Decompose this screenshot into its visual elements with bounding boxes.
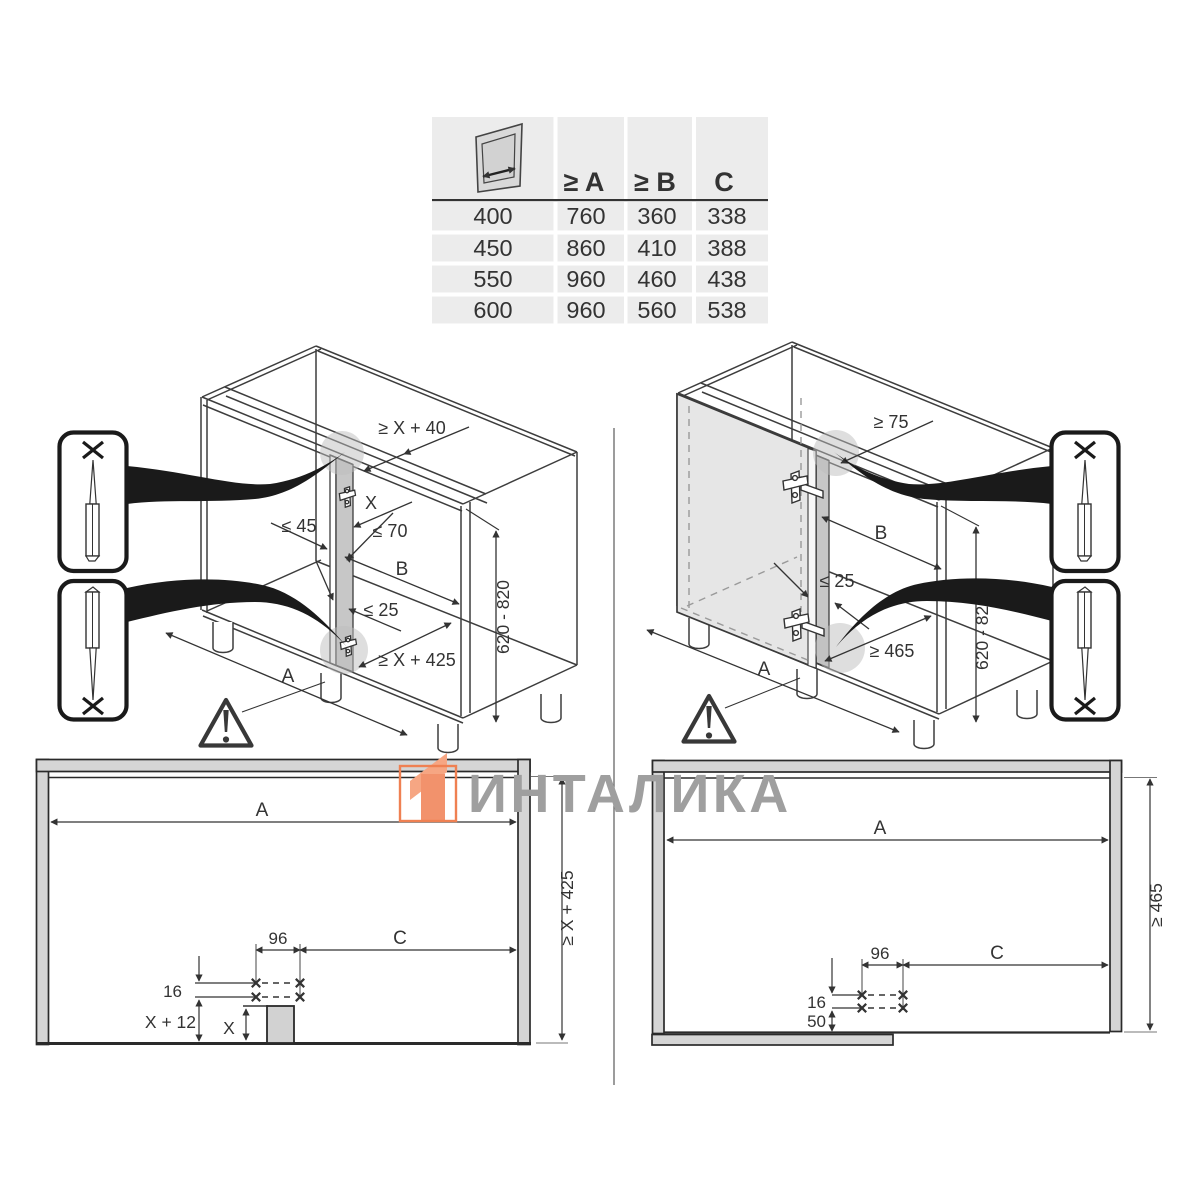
svg-text:16: 16 (807, 993, 826, 1012)
svg-text:560: 560 (637, 297, 676, 323)
svg-text:50: 50 (807, 1012, 826, 1031)
svg-text:≥ 75: ≥ 75 (874, 412, 909, 432)
svg-text:960: 960 (566, 297, 605, 323)
svg-text:96: 96 (871, 944, 890, 963)
svg-text:C: C (990, 943, 1004, 964)
svg-text:620 - 820: 620 - 820 (972, 596, 992, 670)
svg-text:C: C (393, 928, 407, 949)
svg-text:X: X (365, 493, 377, 513)
svg-text:A: A (758, 659, 771, 680)
svg-text:388: 388 (707, 235, 746, 261)
svg-text:ИНТАЛИКА: ИНТАЛИКА (468, 764, 792, 824)
svg-text:600: 600 (473, 297, 512, 323)
svg-text:620 - 820: 620 - 820 (493, 580, 513, 654)
svg-text:400: 400 (473, 203, 512, 229)
svg-text:≥ B: ≥ B (634, 167, 676, 197)
svg-text:A: A (874, 818, 887, 839)
svg-text:X: X (223, 1018, 235, 1038)
svg-text:≤ 25: ≤ 25 (820, 571, 855, 591)
svg-text:≤ 45: ≤ 45 (282, 516, 317, 536)
svg-text:338: 338 (707, 203, 746, 229)
svg-text:550: 550 (473, 266, 512, 292)
svg-text:≥ X + 425: ≥ X + 425 (557, 870, 577, 945)
svg-text:960: 960 (566, 266, 605, 292)
svg-text:538: 538 (707, 297, 746, 323)
svg-text:X + 12: X + 12 (145, 1012, 196, 1032)
svg-text:438: 438 (707, 266, 746, 292)
svg-text:≥ X + 40: ≥ X + 40 (378, 418, 445, 438)
svg-text:A: A (256, 800, 269, 821)
svg-text:≥ 465: ≥ 465 (870, 641, 915, 661)
svg-text:B: B (875, 523, 888, 544)
svg-text:≥ A: ≥ A (564, 167, 605, 197)
svg-text:C: C (714, 167, 734, 197)
svg-text:16: 16 (163, 982, 182, 1001)
svg-text:≤ 25: ≤ 25 (364, 600, 399, 620)
svg-text:≤ 70: ≤ 70 (373, 521, 408, 541)
svg-text:860: 860 (566, 235, 605, 261)
svg-text:450: 450 (473, 235, 512, 261)
svg-text:B: B (396, 559, 409, 580)
svg-text:96: 96 (269, 929, 288, 948)
svg-text:≥ 465: ≥ 465 (1146, 883, 1166, 927)
svg-text:≥ X + 425: ≥ X + 425 (378, 650, 455, 670)
svg-text:410: 410 (637, 235, 676, 261)
svg-text:760: 760 (566, 203, 605, 229)
svg-text:460: 460 (637, 266, 676, 292)
svg-text:A: A (282, 666, 295, 687)
svg-text:360: 360 (637, 203, 676, 229)
